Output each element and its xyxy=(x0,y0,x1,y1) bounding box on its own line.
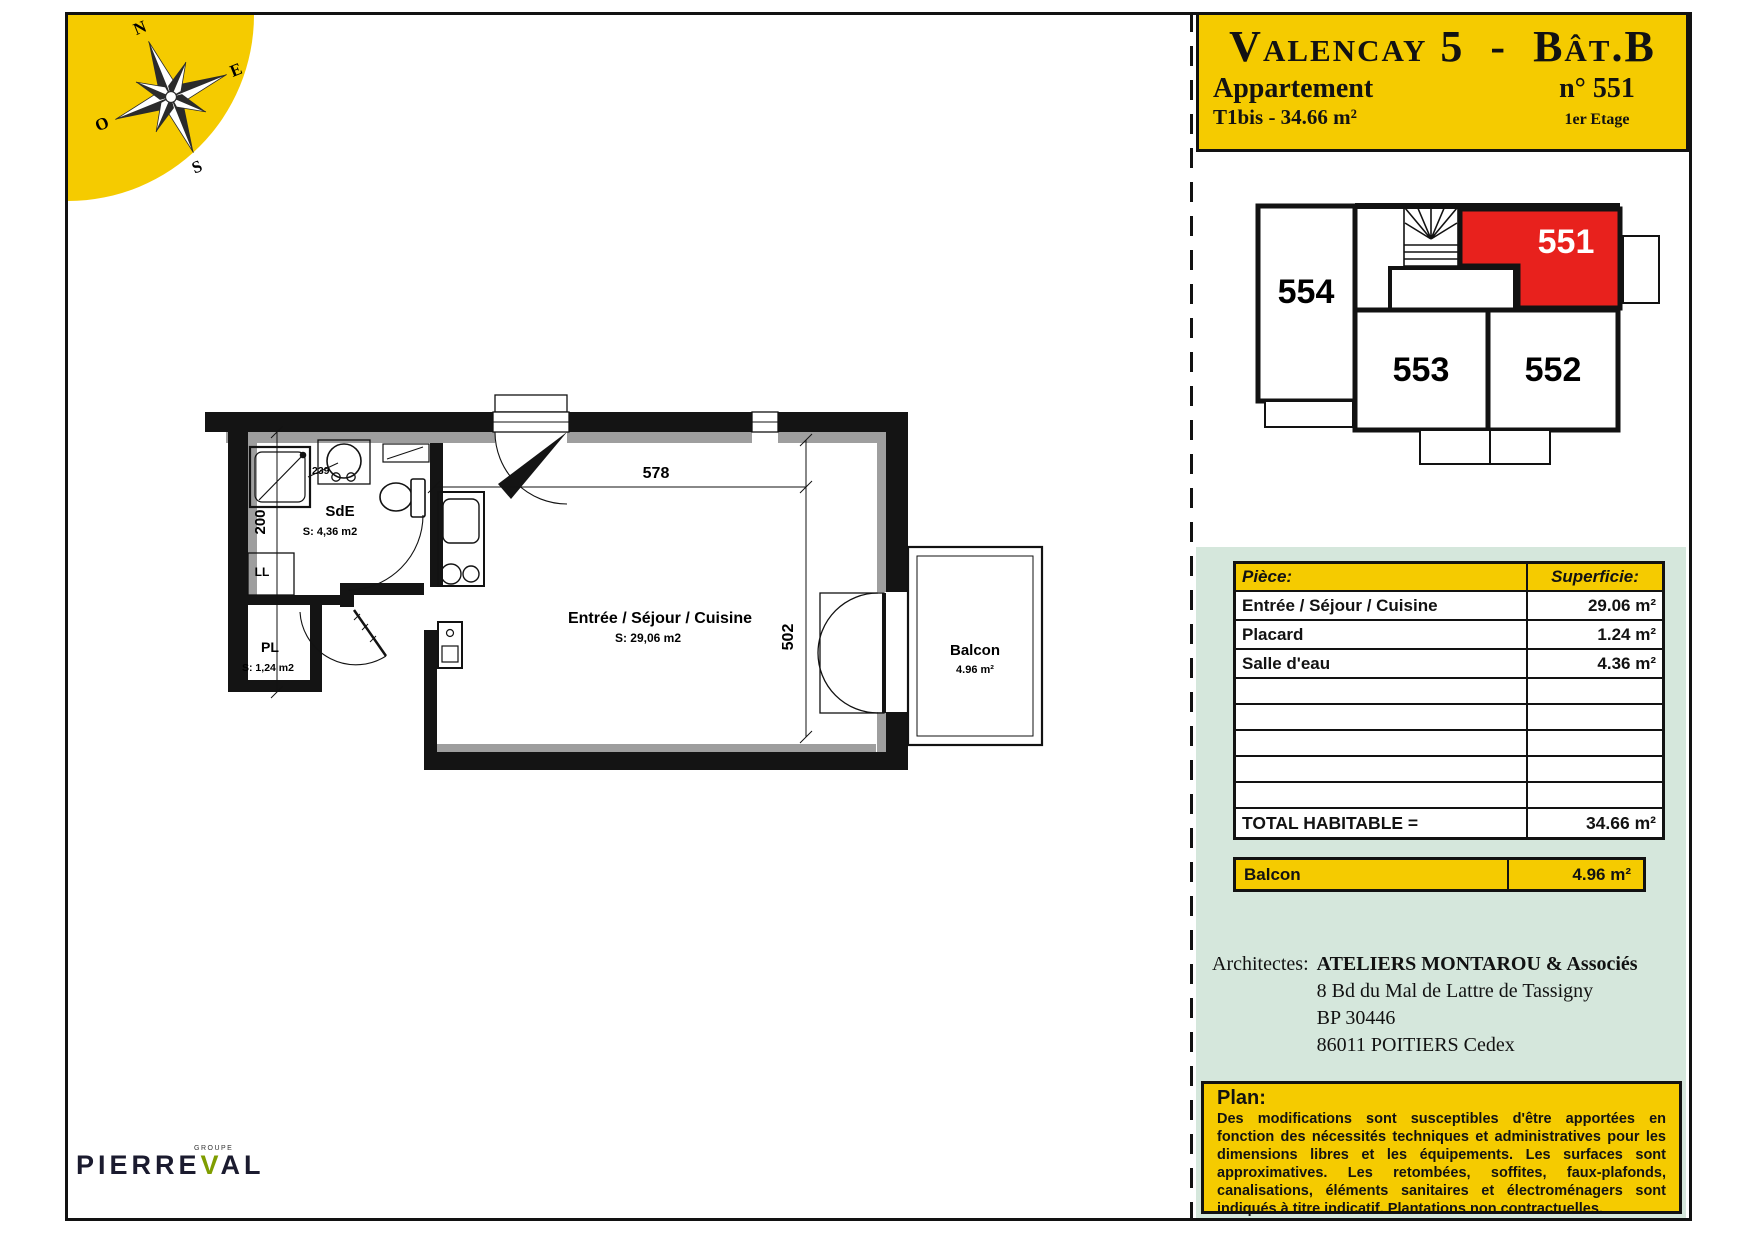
plan-note-body: Des modifications sont susceptibles d'êt… xyxy=(1217,1110,1666,1218)
architects-city: 86011 POITIERS Cedex xyxy=(1317,1032,1638,1059)
shower-icon xyxy=(250,447,310,507)
apartment-label: Appartement xyxy=(1213,73,1373,105)
table-row-empty xyxy=(1235,756,1664,782)
room-sde-area: S: 4,36 m2 xyxy=(303,526,357,538)
total-value: 34.66 m² xyxy=(1527,808,1664,839)
logo-brand-post: AL xyxy=(221,1150,265,1180)
total-label: TOTAL HABITABLE = xyxy=(1235,808,1528,839)
building-name: Bât.B xyxy=(1533,23,1656,71)
balcon-summary-row: Balcon 4.96 m² xyxy=(1233,857,1646,892)
table-row: Entrée / Séjour / Cuisine 29.06 m² xyxy=(1235,591,1664,620)
room-sejour-name: Entrée / Séjour / Cuisine xyxy=(568,610,752,627)
table-row-empty xyxy=(1235,730,1664,756)
dashed-divider-line xyxy=(1190,12,1193,1218)
type-and-surface: T1bis - 34.66 m² xyxy=(1213,105,1357,130)
compass-south-label: S xyxy=(189,156,205,177)
entry-door-sill xyxy=(495,395,567,412)
cell-piece: Placard xyxy=(1235,620,1528,649)
cell-piece: Entrée / Séjour / Cuisine xyxy=(1235,591,1528,620)
sde-door-arc xyxy=(348,515,423,590)
architects-block: Architectes: ATELIERS MONTAROU & Associé… xyxy=(1212,951,1638,1059)
header-piece: Pièce: xyxy=(1235,563,1528,592)
washbasin-icon xyxy=(318,440,370,484)
keyplan-balcony-551 xyxy=(1623,236,1659,303)
room-pl-name: PL xyxy=(261,639,279,655)
title-dash: - xyxy=(1490,23,1507,71)
washing-machine-label: LL xyxy=(255,565,270,579)
table-row-total: TOTAL HABITABLE = 34.66 m² xyxy=(1235,808,1664,839)
french-door-arcs xyxy=(818,593,878,713)
unit-number: n° 551 xyxy=(1522,73,1672,105)
keyplan-label-551: 551 xyxy=(1538,223,1595,261)
floor-label: 1er Etage xyxy=(1522,111,1672,129)
room-sejour-area: S: 29,06 m2 xyxy=(615,631,681,645)
architects-address: ATELIERS MONTAROU & Associés 8 Bd du Mal… xyxy=(1317,951,1638,1059)
kitchen-block-icon xyxy=(438,492,484,586)
stairs-icon xyxy=(1404,205,1458,270)
building-key-plan: 554 551 553 552 xyxy=(1243,193,1683,483)
table-row: Placard 1.24 m² xyxy=(1235,620,1664,649)
surface-table: Pièce: Superficie: Entrée / Séjour / Cui… xyxy=(1233,561,1665,840)
surface-panel: Pièce: Superficie: Entrée / Séjour / Cui… xyxy=(1196,547,1686,1218)
table-row: Salle d'eau 4.36 m² xyxy=(1235,649,1664,678)
logo-brand-pre: PIERRE xyxy=(76,1150,201,1180)
room-balcon-area: 4.96 m² xyxy=(956,664,994,676)
floor-plan: 239 LL xyxy=(180,360,1060,790)
keyplan-balcony-552 xyxy=(1490,430,1550,464)
plan-disclaimer-box: Plan: Des modifications sont susceptible… xyxy=(1201,1081,1682,1214)
keyplan-landing xyxy=(1390,268,1515,310)
title-box: Valencay 5 - Bât.B Appartement n° 551 T1… xyxy=(1196,12,1689,152)
keyplan-label-553: 553 xyxy=(1393,351,1450,389)
cell-piece: Salle d'eau xyxy=(1235,649,1528,678)
logo-tagline: GROUPE xyxy=(194,1145,233,1152)
wall-lining xyxy=(226,432,886,752)
cell-superficie: 4.36 m² xyxy=(1527,649,1664,678)
surface-table-header: Pièce: Superficie: xyxy=(1235,563,1664,592)
toilet-icon xyxy=(380,479,425,517)
room-pl-area: S: 1,24 m2 xyxy=(242,662,294,674)
entry-door-leaf xyxy=(498,432,567,499)
table-row-empty xyxy=(1235,678,1664,704)
table-row-empty xyxy=(1235,782,1664,808)
architects-label: Architectes: xyxy=(1212,951,1309,1059)
keyplan-balcony-553 xyxy=(1420,430,1490,464)
dim-left-height: 200 xyxy=(252,509,269,534)
dim-right-height: 502 xyxy=(780,624,797,651)
table-row-empty xyxy=(1235,704,1664,730)
keyplan-label-552: 552 xyxy=(1525,351,1582,389)
logo-brand: PIERREVAL xyxy=(76,1150,265,1180)
room-sde-name: SdE xyxy=(325,503,354,520)
residence-title: Valencay 5 - Bât.B xyxy=(1199,23,1686,71)
keyplan-label-554: 554 xyxy=(1278,273,1335,311)
dim-top-width: 578 xyxy=(643,465,670,482)
keyplan-balcony-554 xyxy=(1265,401,1353,427)
logo-brand-v: V xyxy=(201,1150,221,1180)
architects-bp: BP 30446 xyxy=(1317,1005,1638,1032)
water-tank-icon xyxy=(438,622,462,668)
balcon-value: 4.96 m² xyxy=(1507,860,1643,889)
plan-note-title: Plan: xyxy=(1217,1087,1666,1110)
residence-name: Valencay 5 xyxy=(1229,23,1464,71)
pierreval-logo: GROUPE PIERREVAL xyxy=(76,1150,265,1181)
balcon-label: Balcon xyxy=(1236,865,1507,885)
compass-rose: N E S O xyxy=(68,15,268,210)
plan-document-page: N E S O Valencay 5 - Bât.B Appartement n… xyxy=(0,0,1754,1240)
architects-name: ATELIERS MONTAROU & Associés xyxy=(1317,951,1638,978)
room-balcon-name: Balcon xyxy=(950,642,1000,659)
french-door-frame xyxy=(820,593,884,713)
cell-superficie: 29.06 m² xyxy=(1527,591,1664,620)
cell-superficie: 1.24 m² xyxy=(1527,620,1664,649)
header-superficie: Superficie: xyxy=(1527,563,1664,592)
architects-street: 8 Bd du Mal de Lattre de Tassigny xyxy=(1317,978,1638,1005)
